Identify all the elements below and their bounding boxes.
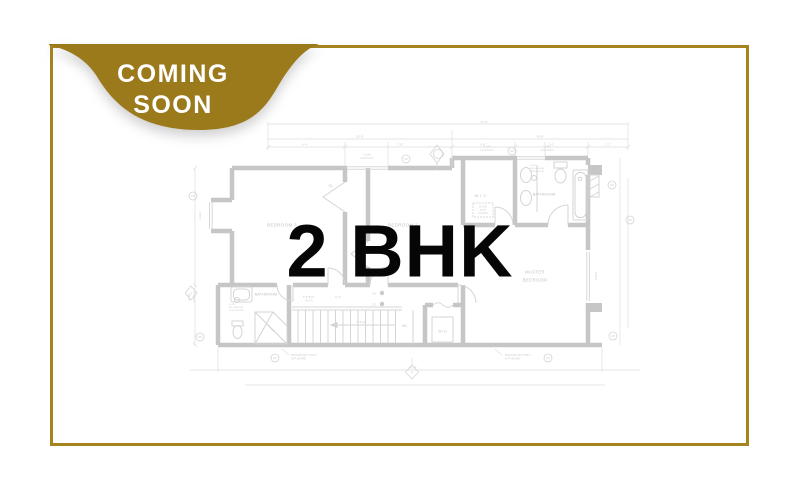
plan-type-title: 2 BHK <box>286 209 513 294</box>
label-wic: W. I. C. <box>474 193 487 198</box>
dim-right-window: 2-2x10 <box>594 271 598 280</box>
note-gyp-right-1: PROVIDE 5/8" TYPE X <box>505 354 531 357</box>
symbol-w3: W3 <box>510 150 514 153</box>
stair-note-box: 5'-8" BOX <box>303 296 314 299</box>
label-bathroom-top: BATHROOM <box>533 192 556 197</box>
header-callout-1a: 2-2x8+ <box>363 153 372 157</box>
dim-seg1: 4'-4" <box>302 143 308 147</box>
note-vent-bl-2: MECHANICAL <box>229 306 244 309</box>
header-callout-2b: L4x3.5x1/4 <box>480 148 494 152</box>
header-callout-3b: L4x3.5x1/4 <box>540 148 554 152</box>
dim-seg2: 7'-10" <box>396 143 403 147</box>
symbol-w3: W3 <box>191 195 195 198</box>
symbol-w3: W3 <box>273 357 277 360</box>
symbol-w4: W4 <box>628 219 632 222</box>
label-shower: SHOWER <box>266 325 275 334</box>
label-master-1: MASTER <box>525 270 545 275</box>
note-vent-bl-3: VENTILATION <box>229 309 244 312</box>
stair-note-arrow: 8'-6 3/4" <box>357 321 366 324</box>
symbol-b: B <box>411 371 413 374</box>
symbol-w3: W3 <box>610 184 614 187</box>
dim-seg3: 6'-4" <box>480 143 486 147</box>
header-callout-1b: L4x3.5x1/4 <box>360 156 374 160</box>
header-callout-left-b: L4x3.5x1/4 <box>193 290 196 302</box>
dim-total-bottom: 41'-6" <box>409 366 417 370</box>
symbol-w3: W3 <box>404 158 408 161</box>
label-master-2: BEDROOM <box>523 278 548 283</box>
symbol-a: A <box>190 292 192 295</box>
label-wd: W / D <box>438 330 447 334</box>
dim-seg5: 2'-2" <box>605 143 611 147</box>
stair-note-run: 11'-6" <box>335 296 341 299</box>
label-bathroom-bottom: BATHROOM <box>255 292 278 297</box>
dim-seg4: 3'-4" <box>548 143 554 147</box>
note-gyp-left-2: GYP. BOARD <box>291 358 306 361</box>
label-co: CO <box>372 303 377 307</box>
coming-soon-badge: COMING SOON <box>49 44 321 140</box>
dim-top-right: 16'-8" <box>536 135 544 139</box>
coming-soon-card: { "badge": { "line1": "COMING", "line2":… <box>0 0 800 500</box>
dim-total-top: 41'-6" <box>480 120 488 124</box>
badge-text-line2: SOON <box>133 91 213 119</box>
badge-text-line1: COMING <box>117 60 229 88</box>
dim-left-window: 2-2x10 <box>198 211 202 220</box>
note-vent-tr-2: MECHANICAL <box>530 167 545 170</box>
dim-top-left: 26'-8" <box>356 135 364 139</box>
note-gyp-left-1: PROVIDE 5/8" TYPE X <box>291 354 317 357</box>
symbol-w3: W3 <box>198 336 202 339</box>
label-closet: CL <box>329 184 334 188</box>
stair-note-flat: (FLAT) <box>305 300 313 303</box>
label-dn: DN <box>402 324 407 328</box>
note-gyp-right-2: GYP. BOARD <box>505 358 520 361</box>
symbol-w3: W3 <box>546 357 550 360</box>
note-vent-tr-1: NOTE: <box>530 165 537 167</box>
note-vent-bl-1: NOTE: <box>229 304 236 306</box>
symbol-w3: W3 <box>611 335 615 338</box>
